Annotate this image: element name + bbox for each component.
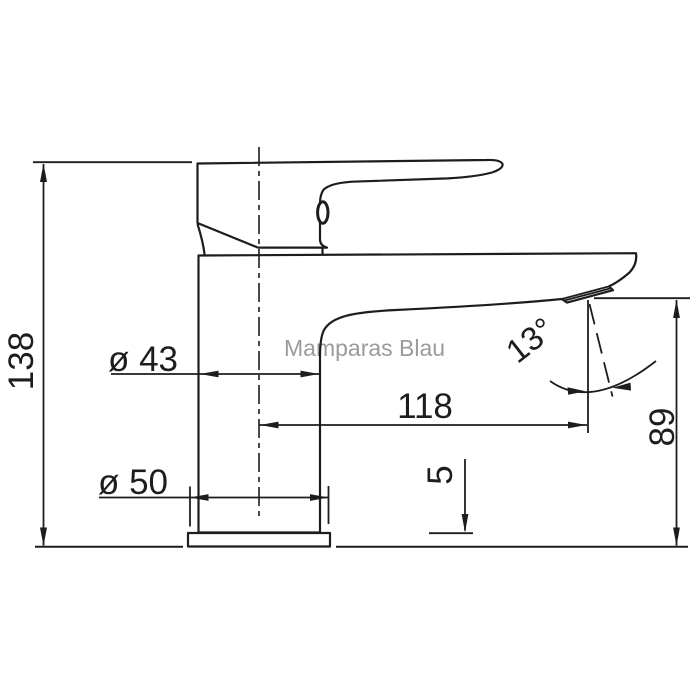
arrowhead-left — [260, 422, 279, 429]
watermark-text: Mamparas Blau — [284, 335, 445, 361]
base-plate — [188, 533, 330, 547]
arrowhead-up — [673, 300, 680, 319]
dimension-label-13deg: 13° — [499, 310, 561, 370]
dimension-angle: 13° — [499, 300, 656, 433]
dimension-label-118: 118 — [397, 387, 453, 426]
angle-arc — [550, 361, 656, 392]
arrowhead-right — [301, 371, 320, 378]
arrowhead-arc-left — [568, 387, 586, 395]
dimension-plate-thickness: 5 — [421, 459, 473, 533]
dimension-label-89: 89 — [643, 408, 682, 447]
dimension-spout-reach: 118 — [260, 387, 588, 428]
handle-skirt-arc — [198, 224, 205, 257]
faucet-dimension-drawing: Mamparas Blau — [0, 0, 700, 700]
angle-reference-slanted — [590, 304, 613, 397]
dimension-label-50: ø 50 — [98, 463, 168, 502]
dimension-label-5: 5 — [421, 465, 460, 484]
arrowhead-up — [40, 164, 47, 183]
dimension-base-diameter: ø 50 — [98, 463, 329, 527]
arrowhead-left — [200, 371, 219, 378]
arrowhead-down — [673, 528, 680, 547]
arrowhead-right — [568, 422, 587, 429]
dimension-label-43: ø 43 — [108, 340, 178, 379]
arrowhead-down — [40, 528, 47, 547]
handle-indicator-oval — [318, 202, 328, 224]
technical-drawing-canvas: Mamparas Blau — [0, 0, 700, 700]
dimension-outlet-height: 89 — [594, 298, 690, 546]
dimension-label-138: 138 — [2, 332, 41, 390]
handle-lever-outline — [198, 160, 503, 248]
arrowhead-down — [462, 514, 469, 533]
